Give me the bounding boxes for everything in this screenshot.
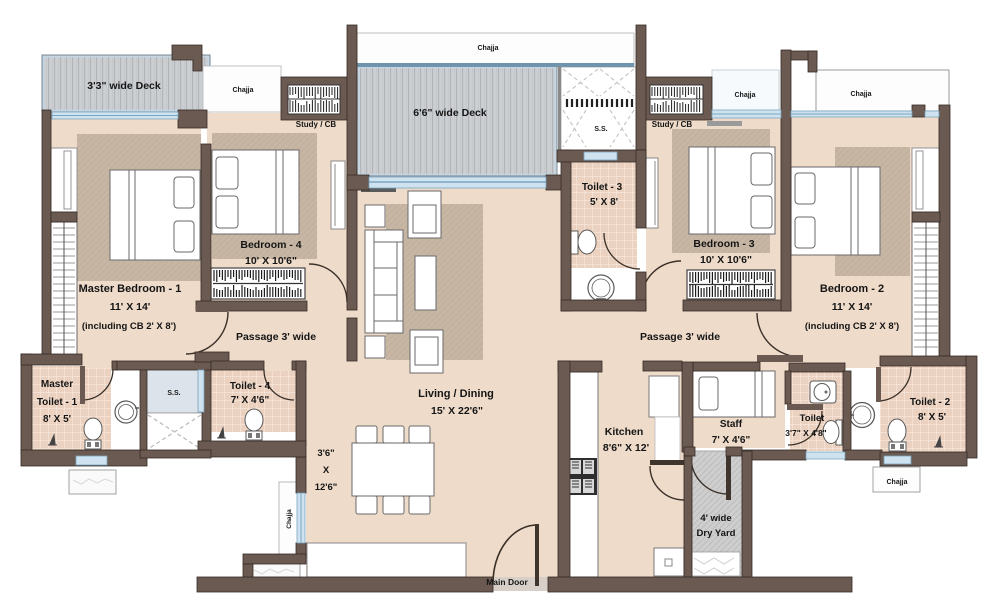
svg-text:Main Door: Main Door — [486, 577, 528, 587]
svg-text:Chajja: Chajja — [886, 479, 907, 486]
svg-text:S.S.: S.S. — [594, 126, 607, 133]
svg-text:Study / CB: Study / CB — [652, 120, 693, 129]
svg-text:8'6" X 12': 8'6" X 12' — [603, 442, 649, 454]
svg-text:7' X 4'6": 7' X 4'6" — [712, 435, 751, 446]
svg-text:3'7" X 4'8": 3'7" X 4'8" — [785, 428, 826, 438]
svg-text:8' X 5': 8' X 5' — [43, 414, 71, 425]
svg-text:(including CB 2' X 8'): (including CB 2' X 8') — [805, 321, 899, 332]
svg-text:Bedroom - 4: Bedroom - 4 — [240, 239, 301, 251]
svg-text:X: X — [323, 465, 330, 476]
svg-text:Master: Master — [41, 379, 73, 390]
svg-text:8' X 5': 8' X 5' — [918, 412, 946, 423]
svg-text:10' X 10'6": 10' X 10'6" — [245, 255, 297, 267]
svg-text:Chajja: Chajja — [477, 45, 498, 52]
svg-text:S.S.: S.S. — [167, 390, 180, 397]
svg-text:3'6": 3'6" — [317, 448, 334, 459]
svg-text:12'6": 12'6" — [315, 482, 338, 493]
svg-text:11' X 14': 11' X 14' — [110, 301, 151, 313]
svg-text:Toilet - 2: Toilet - 2 — [910, 397, 951, 408]
svg-text:3'3" wide Deck: 3'3" wide Deck — [87, 80, 161, 92]
svg-text:6'6" wide Deck: 6'6" wide Deck — [413, 107, 487, 119]
svg-text:Chajja: Chajja — [232, 87, 253, 94]
svg-text:Passage 3' wide: Passage 3' wide — [236, 331, 316, 343]
svg-text:(including CB 2' X 8'): (including CB 2' X 8') — [82, 321, 176, 332]
svg-text:Study / CB: Study / CB — [296, 120, 337, 129]
svg-text:Toilet - 4: Toilet - 4 — [230, 381, 271, 392]
svg-text:5' X 8': 5' X 8' — [590, 197, 618, 208]
svg-text:Chajja: Chajja — [850, 91, 871, 98]
svg-text:Dry Yard: Dry Yard — [697, 528, 736, 539]
svg-text:Bedroom - 3: Bedroom - 3 — [693, 238, 754, 250]
svg-text:10' X 10'6": 10' X 10'6" — [700, 254, 752, 266]
svg-text:Toilet - 1: Toilet - 1 — [37, 397, 78, 408]
svg-text:Chajja: Chajja — [286, 509, 293, 529]
svg-text:Toilet: Toilet — [800, 413, 825, 424]
svg-text:Toilet - 3: Toilet - 3 — [582, 182, 623, 193]
svg-text:Staff: Staff — [720, 419, 743, 430]
svg-text:Chajja: Chajja — [734, 92, 755, 99]
svg-text:4' wide: 4' wide — [700, 513, 731, 524]
svg-text:11' X 14': 11' X 14' — [832, 301, 873, 313]
svg-text:15' X 22'6": 15' X 22'6" — [431, 405, 483, 417]
svg-text:Passage 3' wide: Passage 3' wide — [640, 331, 720, 343]
svg-text:Master Bedroom - 1: Master Bedroom - 1 — [79, 283, 182, 295]
svg-text:Living / Dining: Living / Dining — [418, 388, 494, 400]
svg-text:7' X 4'6": 7' X 4'6" — [231, 395, 270, 406]
svg-text:Bedroom - 2: Bedroom - 2 — [820, 283, 884, 295]
svg-text:Kitchen: Kitchen — [605, 426, 644, 438]
